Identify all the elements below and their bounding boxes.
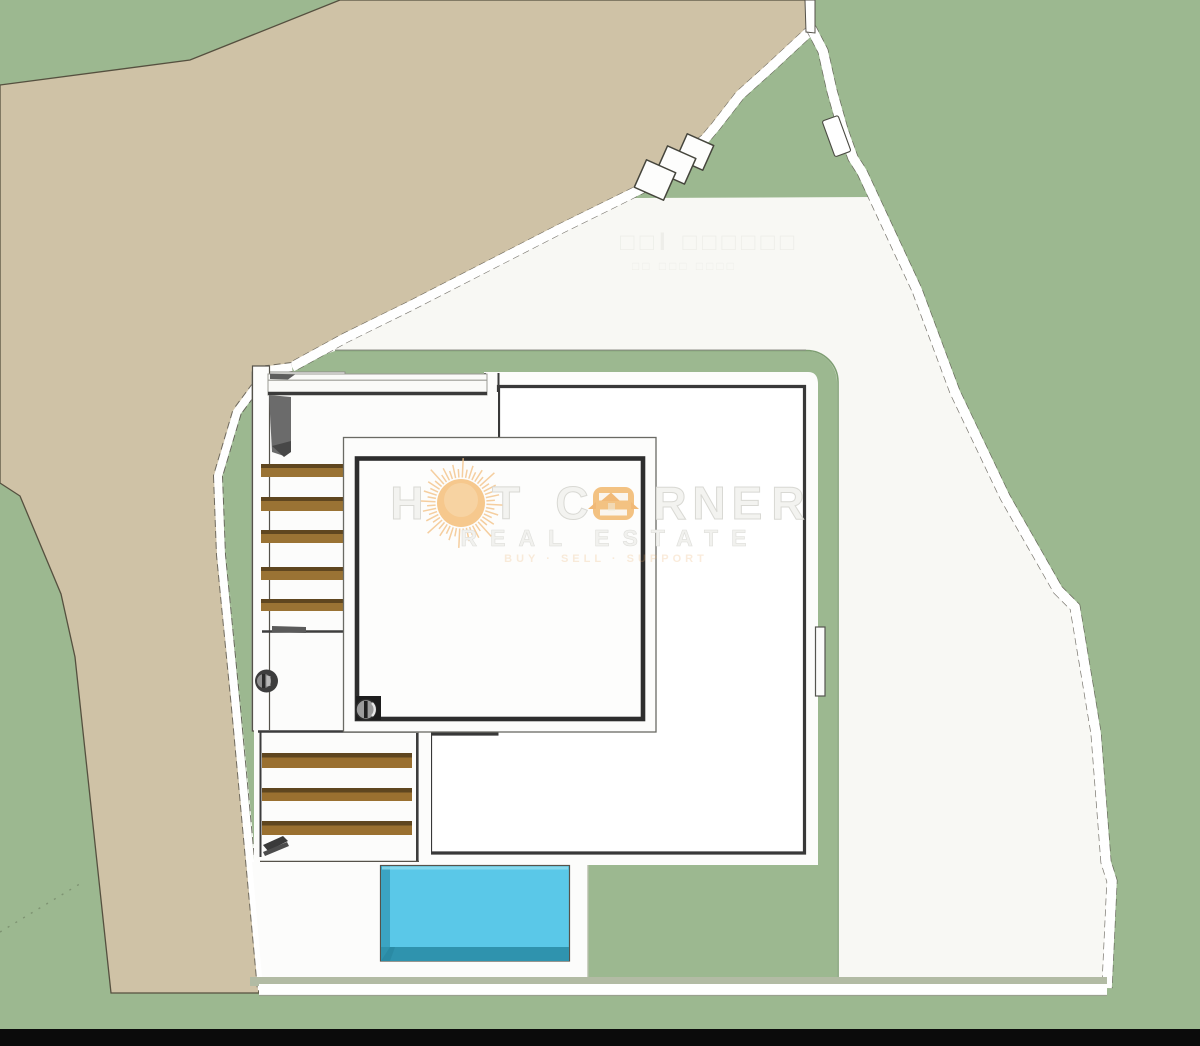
svg-text:C: C — [555, 477, 588, 529]
svg-text:H: H — [390, 477, 423, 529]
svg-text:R: R — [771, 477, 804, 529]
svg-text:BUY · SELL · SUPPORT: BUY · SELL · SUPPORT — [504, 553, 708, 565]
svg-text:T: T — [492, 477, 520, 529]
svg-text:N: N — [692, 477, 725, 529]
svg-text:□□ □□□ □□□□: □□ □□□ □□□□ — [632, 259, 737, 273]
svg-text:R: R — [653, 477, 686, 529]
svg-text:REAL ESTATE: REAL ESTATE — [461, 525, 760, 551]
svg-text:□□l □□□□□□: □□l □□□□□□ — [620, 229, 799, 256]
svg-text:E: E — [732, 477, 763, 529]
